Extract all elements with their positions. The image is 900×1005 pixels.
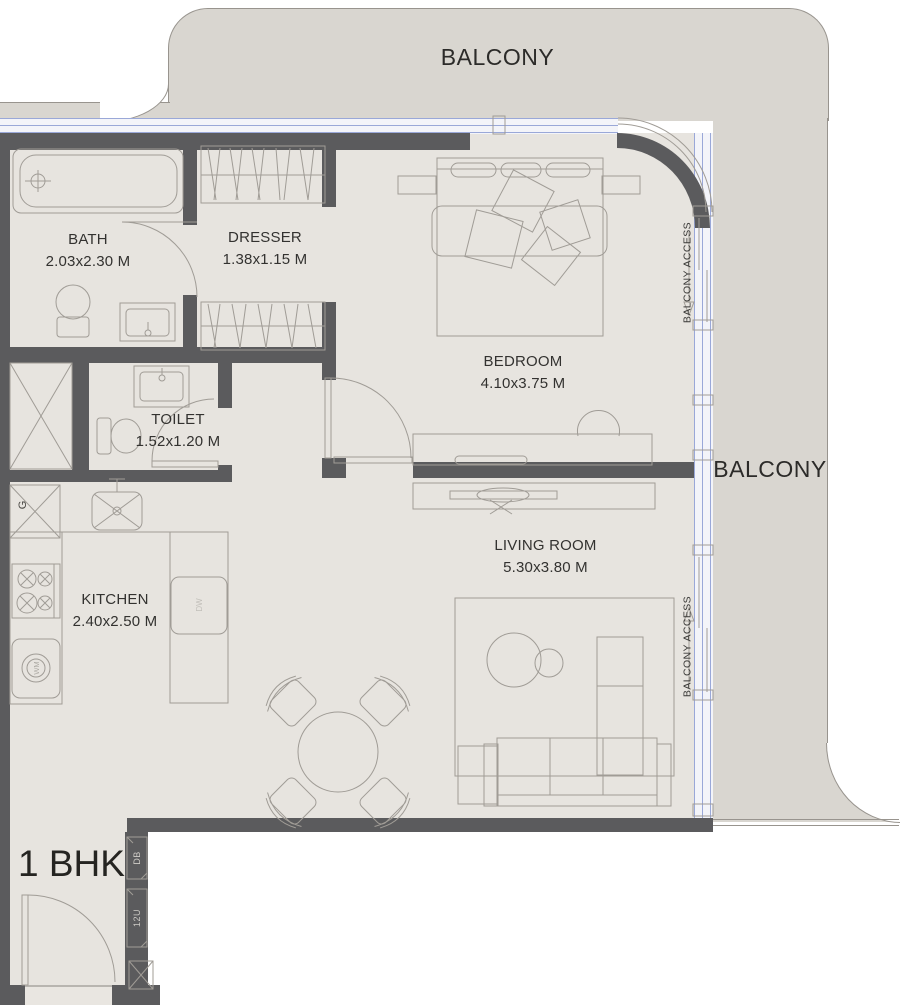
gas-shaft-label: G <box>17 485 29 525</box>
dresser-dims: 1.38x1.15 M <box>202 249 328 271</box>
kitchen-name: KITCHEN <box>50 589 180 611</box>
db-panel-label: DB <box>132 838 142 878</box>
coffee-tables <box>487 633 563 687</box>
balcony-access-bedroom-label: BALCONY ACCESS <box>681 213 694 333</box>
dining-set <box>260 670 416 834</box>
toilet-sink <box>134 366 189 407</box>
balcony-slider-leaves <box>699 218 707 692</box>
kitchen-label: KITCHEN 2.40x2.50 M <box>50 589 180 633</box>
balcony-access-living-label: BALCONY ACCESS <box>681 587 694 707</box>
toilet-dims: 1.52x1.20 M <box>124 431 232 453</box>
entry-shaft-box <box>129 961 153 989</box>
bath-dims: 2.03x2.30 M <box>28 251 148 273</box>
bed <box>398 158 640 336</box>
toilet-label: TOILET 1.52x1.20 M <box>124 409 232 453</box>
bath-label: BATH 2.03x2.30 M <box>28 229 148 273</box>
bedroom-name: BEDROOM <box>448 351 598 373</box>
living-room-dims: 5.30x3.80 M <box>458 557 633 579</box>
corner-window-inner <box>618 124 706 212</box>
toilet-name: TOILET <box>124 409 232 431</box>
tv-unit <box>413 483 655 514</box>
shaft-box <box>10 363 72 469</box>
washing-machine-label: WM <box>31 648 41 688</box>
living-rug <box>455 598 674 776</box>
bedroom-door <box>325 378 412 463</box>
unit-type-label: 1 BHK <box>18 843 133 885</box>
12u-panel-label: 12U <box>132 898 142 938</box>
shelf-unit <box>597 637 643 775</box>
dresser-label: DRESSER 1.38x1.15 M <box>202 227 328 271</box>
dishwasher-label: DW <box>194 585 204 625</box>
bathtub <box>13 149 183 213</box>
entry-door <box>22 895 115 985</box>
bedroom-dims: 4.10x3.75 M <box>448 373 598 395</box>
bath-sink <box>120 303 175 341</box>
balcony-top-label: BALCONY <box>168 44 827 71</box>
living-room-name: LIVING ROOM <box>458 535 633 557</box>
living-room-label: LIVING ROOM 5.30x3.80 M <box>458 535 633 579</box>
balcony-right-label: BALCONY <box>711 456 829 483</box>
kitchen-dims: 2.40x2.50 M <box>50 611 180 633</box>
dresser-name: DRESSER <box>202 227 328 249</box>
kitchen-sink <box>92 479 142 530</box>
corner-window-outer <box>618 118 712 212</box>
bath-wc <box>56 285 90 337</box>
bedroom-label: BEDROOM 4.10x3.75 M <box>448 351 598 395</box>
bedroom-dressing-table <box>413 410 652 465</box>
floor-plan: BALCONY BALCONY BATH 2.03x2.30 M DRESSER… <box>0 0 900 1005</box>
bath-name: BATH <box>28 229 148 251</box>
sofa <box>458 738 671 806</box>
